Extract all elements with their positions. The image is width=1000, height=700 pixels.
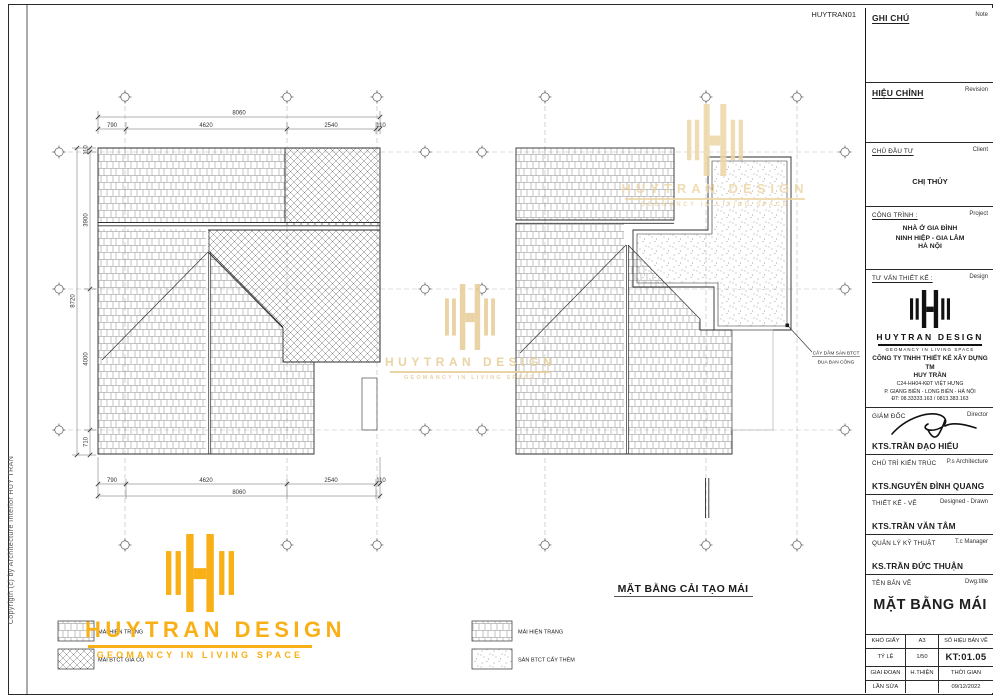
drawing-title-label: TÊN BẢN VẼ (872, 580, 911, 587)
client-name: CHỊ THỦY (872, 177, 988, 186)
tech-manager-label: QUẢN LÝ KỸ THUẬT (872, 540, 936, 547)
roof-plan-canvas: 8060 790 4620 2540 110 790 4620 2540 110… (0, 0, 1000, 700)
dim-total-top: 8060 (232, 111, 246, 117)
roof-plan-existing: 8060 790 4620 2540 110 790 4620 2540 110… (71, 111, 387, 500)
designer-label-en: Designed - Drawn (940, 499, 988, 505)
tech-manager-label-en: T.c Manager (955, 539, 988, 545)
titleblock-tech-manager: QUẢN LÝ KỸ THUẬT T.c Manager KS.TRẦN ĐỨC… (866, 535, 993, 575)
stage-value: H.THIỆN (906, 667, 939, 681)
svg-text:110: 110 (376, 123, 386, 129)
company-logo: HUYTRAN DESIGN GEOMANCY IN LIVING SPACE (872, 290, 988, 352)
titleblock-revision: HIỆU CHỈNH Revision (866, 83, 993, 143)
drawing-title-renovated: MẶT BẰNG CẢI TẠO MÁI (614, 582, 753, 597)
architect-name: KTS.NGUYỄN ĐÌNH QUANG (872, 481, 984, 491)
drawing-number-value: KT:01.05 (939, 649, 993, 668)
stage-label: GIAI ĐOẠN (866, 667, 906, 681)
director-signature (888, 410, 980, 444)
paper-size-value: A3 (906, 635, 939, 649)
note-label: GHI CHÚ (872, 13, 909, 23)
company-name-line1: CÔNG TY TNHH THIẾT KẾ XÂY DỰNG TM (872, 355, 988, 372)
svg-text:2540: 2540 (324, 478, 338, 484)
legend-renovated: MÁI HIỆN TRẠNG SÀN BTCT CẤY THÊM (472, 621, 575, 669)
svg-text:4620: 4620 (199, 123, 213, 129)
svg-text:ĐUA BAN CÔNG: ĐUA BAN CÔNG (818, 359, 855, 366)
svg-text:4620: 4620 (199, 478, 213, 484)
company-brand-name: HUYTRAN DESIGN (872, 332, 988, 342)
svg-text:2540: 2540 (324, 123, 338, 129)
revision-count-label: LẦN SỬA (866, 681, 906, 694)
dim-total-left: 8720 (71, 294, 77, 308)
tech-manager-name: KS.TRẦN ĐỨC THUẬN (872, 561, 963, 571)
project-location: NINH HIỆP - GIA LÂM (872, 235, 988, 242)
titleblock-director: GIÁM ĐỐC Director KTS.TRẦN ĐẠO HIẾU (866, 408, 993, 455)
scale-value: 1/50 (906, 649, 939, 668)
svg-text:3900: 3900 (84, 213, 90, 227)
dim-total-bottom: 8060 (232, 490, 246, 496)
company-address1: C24-HH04-KĐT VIỆT HƯNG (872, 381, 988, 389)
titleblock-client: CHỦ ĐẦU TƯ Client CHỊ THỦY (866, 143, 993, 207)
drawing-title-label-en: Dwg.title (965, 579, 988, 585)
project-label: CÔNG TRÌNH : (872, 212, 918, 219)
project-label-en: Project (969, 211, 988, 217)
roof-plan-renovated: CẤY DẦM SÀN BTCT ĐUA BAN CÔNG MẶT BẰNG C… (516, 148, 860, 597)
architect-label: CHỦ TRÌ KIẾN TRÚC (872, 460, 936, 467)
svg-text:790: 790 (107, 123, 118, 129)
titleblock-architect: CHỦ TRÌ KIẾN TRÚC P.s Architecture KTS.N… (866, 455, 993, 495)
consultant-label: TƯ VẤN THIẾT KẾ : (872, 275, 933, 282)
project-name: NHÀ Ở GIA ĐÌNH (872, 225, 988, 232)
company-brand-tagline: GEOMANCY IN LIVING SPACE (872, 347, 988, 352)
legend-existing: MÁI HIỆN TRẠNG MÁI BTCT GIẢ CỔ (58, 621, 145, 669)
svg-text:790: 790 (107, 478, 118, 484)
drawing-number-label: SỐ HIỆU BẢN VẼ (939, 635, 993, 649)
revision-label: HIỆU CHỈNH (872, 88, 924, 98)
sheet-code: HUYTRAN01 (760, 10, 856, 19)
company-address2: P. GIANG BIÊN - LONG BIÊN - HÀ NỘI (872, 389, 988, 397)
svg-text:110: 110 (84, 145, 90, 155)
revision-label-en: Revision (965, 87, 988, 93)
titleblock-note: GHI CHÚ Note (866, 8, 993, 83)
title-block: GHI CHÚ Note HIỆU CHỈNH Revision CHỦ ĐẦU… (865, 8, 993, 693)
svg-text:MÁI BTCT GIẢ CỔ: MÁI BTCT GIẢ CỔ (98, 657, 145, 664)
consultant-label-en: Design (969, 274, 988, 280)
architect-label-en: P.s Architecture (947, 459, 988, 465)
note-label-en: Note (975, 12, 988, 18)
revision-count-value (906, 681, 939, 694)
paper-size-label: KHỔ GIẤY (866, 635, 906, 649)
svg-text:710: 710 (84, 436, 90, 447)
project-city: HÀ NỘI (872, 243, 988, 250)
annotation-slab-leader: CẤY DẦM SÀN BTCT ĐUA BAN CÔNG (786, 324, 861, 366)
time-value: 09/12/2022 (939, 681, 993, 694)
company-name-line2: HUY TRẦN (872, 372, 988, 381)
svg-text:CẤY DẦM SÀN BTCT: CẤY DẦM SÀN BTCT (813, 350, 860, 357)
svg-text:4000: 4000 (84, 352, 90, 366)
titleblock-consultant: TƯ VẤN THIẾT KẾ : Design HUYTRAN DESIGN … (866, 270, 993, 408)
designer-name: KTS.TRẦN VĂN TÂM (872, 521, 956, 531)
titleblock-info-table: KHỔ GIẤY A3 SỐ HIỆU BẢN VẼ TỶ LỆ 1/50 KT… (866, 635, 993, 693)
titleblock-drawing-title: TÊN BẢN VẼ Dwg.title MẶT BẰNG MÁI (866, 575, 993, 635)
client-label-en: Client (973, 147, 988, 153)
svg-text:110: 110 (376, 478, 386, 484)
scale-label: TỶ LỆ (866, 649, 906, 668)
company-phone: ĐT: 08.33333.163 / 0813.383.163 (872, 396, 988, 404)
drawing-sheet: 8060 790 4620 2540 110 790 4620 2540 110… (0, 0, 1000, 700)
time-label: THỜI GIAN (939, 667, 993, 681)
svg-text:MÁI HIỆN TRẠNG: MÁI HIỆN TRẠNG (518, 628, 563, 636)
titleblock-designer: THIẾT KẾ - VẼ Designed - Drawn KTS.TRẦN … (866, 495, 993, 535)
drawing-title-value: MẶT BẰNG MÁI (872, 597, 988, 613)
huytran-logo-icon (910, 290, 950, 328)
svg-text:MẶT BẰNG CẢI TẠO MÁI: MẶT BẰNG CẢI TẠO MÁI (618, 582, 749, 595)
svg-text:SÀN BTCT CẤY THÊM: SÀN BTCT CẤY THÊM (518, 656, 575, 664)
designer-label: THIẾT KẾ - VẼ (872, 500, 917, 507)
svg-text:MÁI HIỆN TRẠNG: MÁI HIỆN TRẠNG (98, 628, 143, 636)
titleblock-project: CÔNG TRÌNH : Project NHÀ Ở GIA ĐÌNH NINH… (866, 207, 993, 270)
director-name: KTS.TRẦN ĐẠO HIẾU (872, 441, 959, 451)
client-label: CHỦ ĐẦU TƯ (872, 148, 914, 155)
